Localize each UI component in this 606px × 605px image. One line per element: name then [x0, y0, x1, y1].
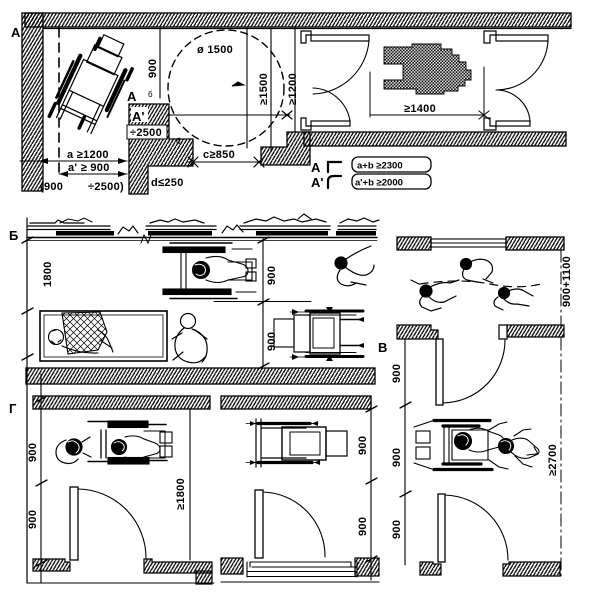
svg-text:Г: Г [9, 401, 17, 416]
svg-text:÷2500): ÷2500) [88, 181, 124, 193]
svg-text:a'+b ≥2000: a'+b ≥2000 [355, 178, 403, 189]
svg-text:900: 900 [357, 436, 369, 455]
svg-text:≥1400: ≥1400 [404, 103, 436, 115]
svg-text:(900: (900 [40, 181, 63, 193]
svg-text:б: б [148, 90, 153, 99]
svg-text:900: 900 [391, 364, 403, 383]
svg-text:≥2700: ≥2700 [547, 444, 559, 476]
svg-text:А: А [311, 160, 321, 175]
svg-text:900: 900 [266, 332, 278, 351]
svg-text:a' ≥ 900: a' ≥ 900 [68, 162, 110, 174]
svg-text:c≥850: c≥850 [203, 149, 235, 161]
svg-text:1800: 1800 [42, 261, 54, 287]
svg-text:900: 900 [27, 510, 39, 529]
svg-text:900: 900 [391, 520, 403, 539]
svg-text:a+b ≥2300: a+b ≥2300 [357, 161, 403, 172]
svg-text:ø 1500: ø 1500 [197, 44, 233, 56]
svg-text:А: А [11, 25, 21, 40]
svg-text:В: В [378, 340, 387, 355]
svg-text:б: б [176, 137, 181, 146]
svg-text:900: 900 [27, 443, 39, 462]
svg-text:900: 900 [147, 59, 159, 78]
svg-text:≥1500: ≥1500 [258, 73, 270, 105]
svg-text:А': А' [311, 175, 323, 190]
svg-text:≥1800: ≥1800 [175, 478, 187, 510]
svg-text:≥1200: ≥1200 [287, 73, 299, 105]
svg-text:a ≥1200: a ≥1200 [67, 149, 109, 161]
svg-text:900: 900 [266, 266, 278, 285]
svg-text:Б: Б [9, 228, 18, 243]
svg-text:А': А' [132, 109, 144, 124]
svg-text:÷2500: ÷2500 [130, 127, 162, 139]
svg-text:d≤250: d≤250 [151, 177, 184, 189]
svg-text:900: 900 [391, 448, 403, 467]
svg-text:А: А [127, 89, 137, 104]
svg-text:900: 900 [357, 517, 369, 536]
svg-text:900+1100: 900+1100 [561, 256, 573, 307]
